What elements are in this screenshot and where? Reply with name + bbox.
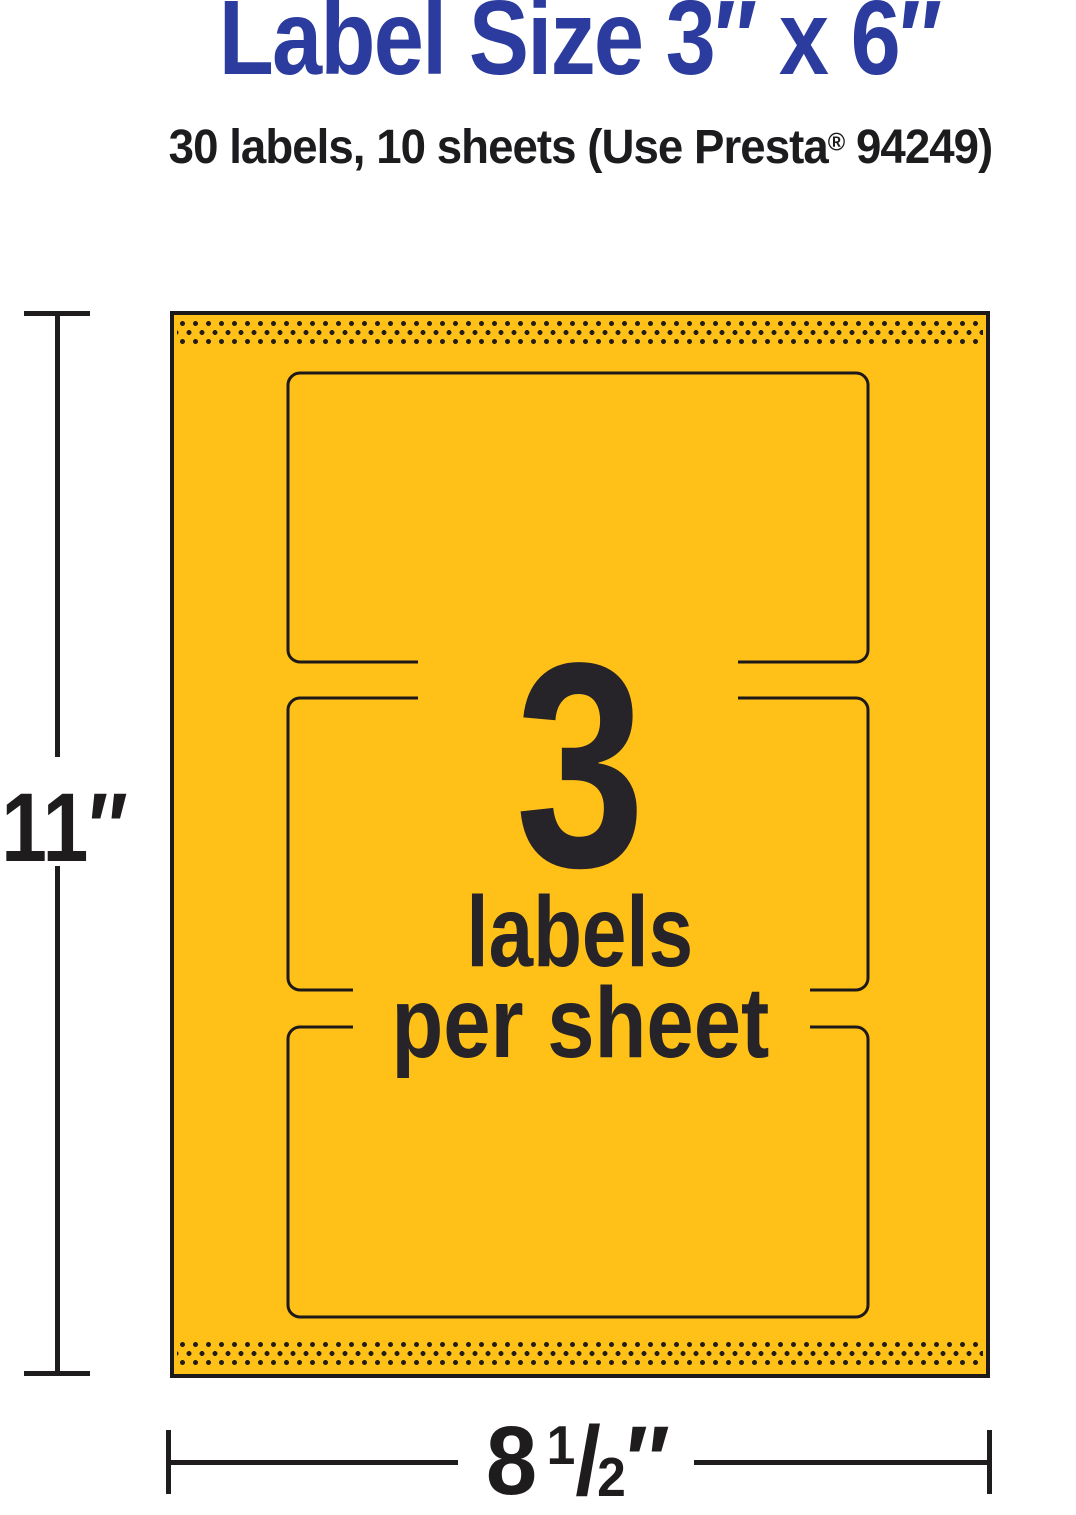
height-dimension-line-upper [55, 311, 60, 757]
label-sheet: 3 labels per sheet [170, 311, 990, 1378]
page-title-text: Label Size 3″ x 6″ [219, 0, 941, 91]
width-fraction-slash: / [575, 1406, 597, 1515]
width-whole-number: 8 [486, 1406, 537, 1515]
width-dimension-line-right [694, 1460, 991, 1465]
subtitle-prefix: 30 labels, 10 sheets (Use Presta [168, 121, 827, 174]
labels-per-sheet-count: 3 [174, 619, 986, 911]
width-dimension-cap-right [987, 1430, 992, 1494]
labels-caption-line2: per sheet [174, 973, 986, 1073]
registered-trademark-symbol: ® [827, 129, 844, 157]
height-dimension-cap-bottom [24, 1371, 90, 1376]
product-subtitle-text: 30 labels, 10 sheets (Use Presta® 94249) [168, 124, 992, 172]
height-dimension-line-lower [55, 866, 60, 1376]
width-unit-mark: ″ [626, 1406, 670, 1515]
page-title: Label Size 3″ x 6″ [0, 0, 1076, 91]
width-dimension-line-left [166, 1460, 458, 1465]
width-fraction-numerator: 1 [547, 1415, 576, 1476]
product-subtitle: 30 labels, 10 sheets (Use Presta® 94249) [0, 124, 1076, 172]
width-fraction-denominator: 2 [597, 1447, 626, 1508]
product-image-canvas: { "header": { "title": "Label Size 3″ x … [0, 0, 1076, 1500]
width-dimension-label: 81/2″ [433, 1412, 723, 1509]
subtitle-suffix: 94249) [844, 121, 992, 174]
height-dimension-label: 11″ [0, 779, 122, 876]
